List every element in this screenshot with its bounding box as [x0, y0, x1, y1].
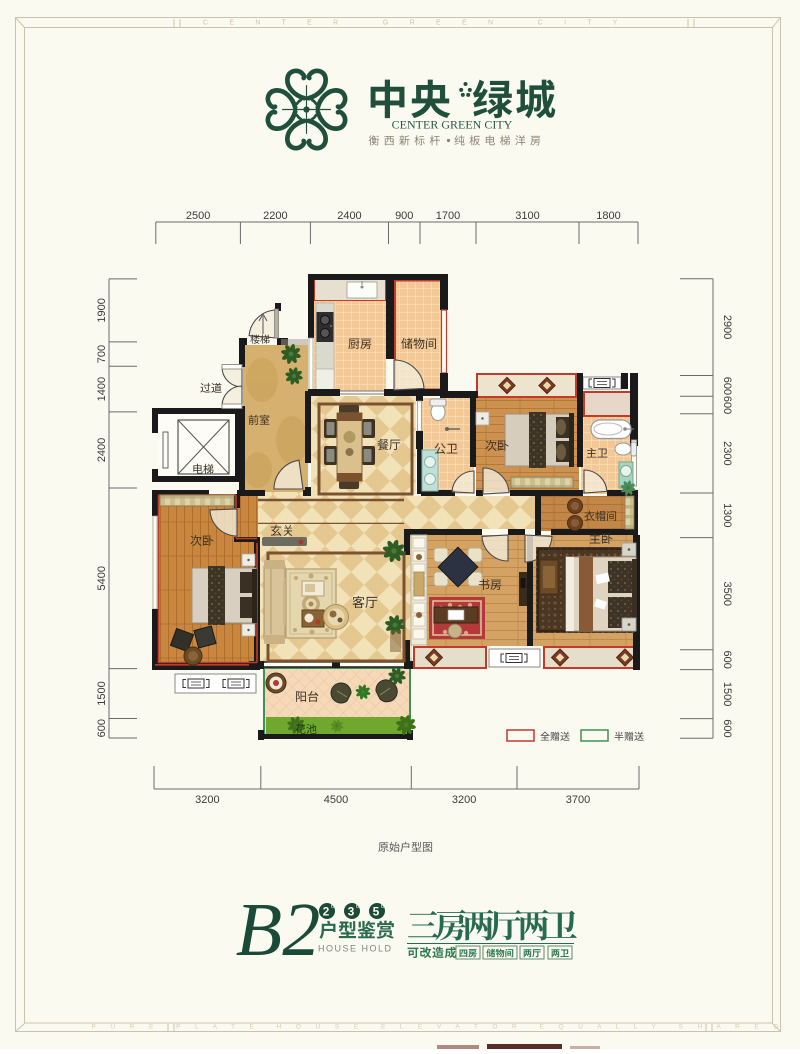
svg-text:3100: 3100	[515, 210, 539, 222]
svg-text:700: 700	[96, 345, 108, 363]
svg-text:600: 600	[96, 719, 108, 737]
svg-text:1900: 1900	[96, 298, 108, 322]
svg-text:5400: 5400	[96, 566, 108, 590]
svg-text:600: 600	[721, 396, 733, 414]
svg-text:P U R E P L A T E H O U S E: P U R E P L A T E H O U S E E L E V A T …	[92, 1024, 785, 1031]
svg-text:1700: 1700	[436, 210, 460, 222]
svg-text:3700: 3700	[566, 794, 590, 806]
svg-text:3200: 3200	[452, 794, 476, 806]
svg-text:1500: 1500	[721, 682, 733, 706]
svg-text:HOUSE HOLD: HOUSE HOLD	[318, 944, 393, 954]
svg-text:2400: 2400	[96, 438, 108, 462]
svg-text:600: 600	[721, 377, 733, 395]
svg-text:600: 600	[721, 719, 733, 737]
svg-text:2400: 2400	[337, 210, 361, 222]
svg-text:1500: 1500	[96, 681, 108, 705]
svg-text:3500: 3500	[721, 581, 733, 605]
svg-text:C E N T E R G R E E N C I: C E N T E R G R E E N C I T Y	[203, 20, 627, 27]
svg-text:3: 3	[348, 905, 355, 919]
svg-text:2300: 2300	[721, 441, 733, 465]
svg-text:5: 5	[373, 905, 380, 919]
svg-text:600: 600	[721, 651, 733, 669]
svg-text:2: 2	[323, 905, 330, 919]
svg-text:900: 900	[395, 210, 413, 222]
svg-text:1400: 1400	[96, 377, 108, 401]
svg-text:CENTER GREEN CITY: CENTER GREEN CITY	[392, 118, 513, 132]
svg-text:B2: B2	[236, 888, 320, 972]
svg-text:4500: 4500	[324, 794, 348, 806]
svg-text:2500: 2500	[186, 210, 210, 222]
svg-text:1800: 1800	[596, 210, 620, 222]
svg-text:3200: 3200	[195, 794, 219, 806]
svg-text:1300: 1300	[721, 503, 733, 527]
svg-text:2200: 2200	[263, 210, 287, 222]
svg-text:2900: 2900	[721, 315, 733, 339]
